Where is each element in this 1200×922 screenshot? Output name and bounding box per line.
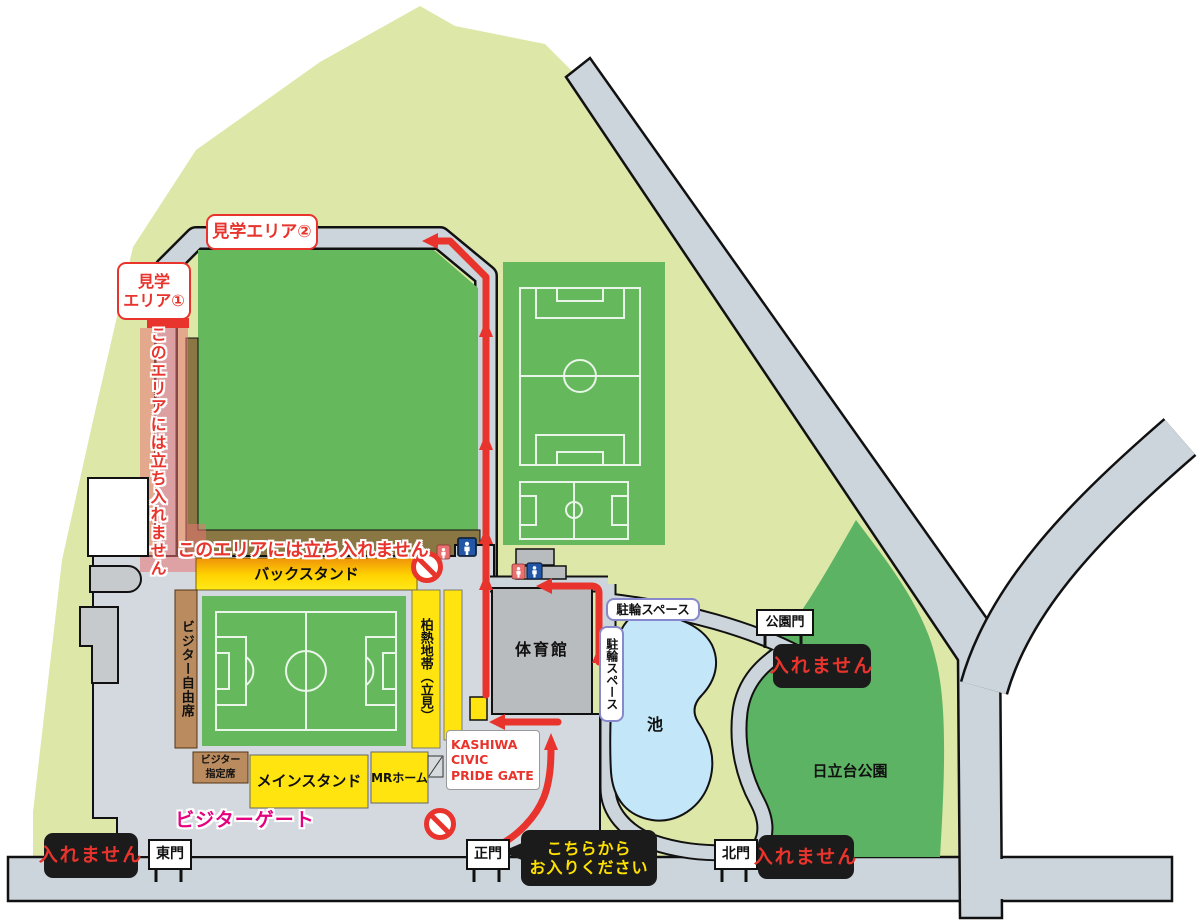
ramp-block (428, 756, 443, 777)
mr-home-label: MRホーム (371, 770, 428, 786)
no-entry-area-vertical-label: このエリアには立ち入れません (144, 334, 170, 570)
viewing-area-1-label: 見学 エリア① (117, 262, 191, 320)
map-graphics (0, 0, 1200, 922)
kashiwa-gate-line2: CIVIC (451, 752, 488, 768)
bicycle-space-label-v: 駐輪スペース (599, 626, 624, 722)
road-intersection-patch (961, 859, 1004, 899)
gate-kiosk (470, 697, 487, 720)
visitor-reserved-label: ビジター 指定席 (193, 753, 248, 782)
visitor-gate-label: ビジターゲート (170, 808, 320, 832)
bicycle-space-label-h: 駐輪スペース (606, 598, 700, 621)
northeast-road (984, 437, 1180, 688)
kashiwa-civic-pride-gate-sign: KASHIWA CIVIC PRIDE GATE (446, 730, 540, 790)
viewing-area-1-line2: エリア① (123, 291, 185, 310)
enter-here-line1: こちらから (546, 839, 631, 858)
main-gate-sign: 正門 (466, 839, 510, 870)
toilet-male-icon (527, 563, 542, 579)
stadium-pitch (202, 596, 406, 746)
hitachidai-park-label: 日立台公園 (798, 760, 902, 782)
no-entry-icon (427, 811, 454, 838)
facility-map: 見学エリア② 見学 エリア① このエリアには立ち入れません このエリアには立ち入… (0, 0, 1200, 922)
kashiwa-gate-line1: KASHIWA (451, 737, 517, 753)
gymnasium-label: 体育館 (492, 637, 592, 663)
main-stand-label: メインスタンド (250, 771, 368, 791)
visitor-reserved-line1: ビジター (201, 754, 241, 768)
back-stand-label: バックスタンド (196, 562, 417, 586)
toilet-male-icon (458, 538, 476, 556)
visitor-reserved-line2: 指定席 (206, 768, 236, 782)
hakunetsu-zone-label: 柏熱地帯（立見） (409, 592, 441, 748)
viewing-area-2-label: 見学エリア② (206, 214, 318, 250)
enter-here-line2: お入りください (529, 858, 648, 877)
north-gate-sign: 北門 (714, 839, 758, 870)
park-gate-sign: 公園門 (756, 609, 814, 636)
kashiwa-gate-line3: PRIDE GATE (451, 768, 534, 784)
practice-field-1 (198, 250, 478, 530)
cannot-enter-badge-east: 入れません (44, 833, 138, 878)
west-building-white (88, 478, 148, 556)
no-entry-area-horizontal-label: このエリアには立ち入れません (183, 540, 423, 562)
east-gate-sign: 東門 (148, 839, 192, 870)
cannot-enter-badge-park: 入れません (773, 644, 871, 688)
viewing-area-1-line1: 見学 (138, 272, 170, 291)
west-building-round (90, 566, 141, 592)
toilet-female-icon (512, 564, 525, 579)
hakunetsu-stand-2 (444, 590, 462, 740)
pond-label: 池 (640, 714, 670, 736)
cannot-enter-badge-north: 入れません (758, 835, 854, 879)
enter-here-box: こちらから お入りください (521, 830, 657, 886)
visitor-free-label: ビジター自由席 (175, 594, 197, 744)
